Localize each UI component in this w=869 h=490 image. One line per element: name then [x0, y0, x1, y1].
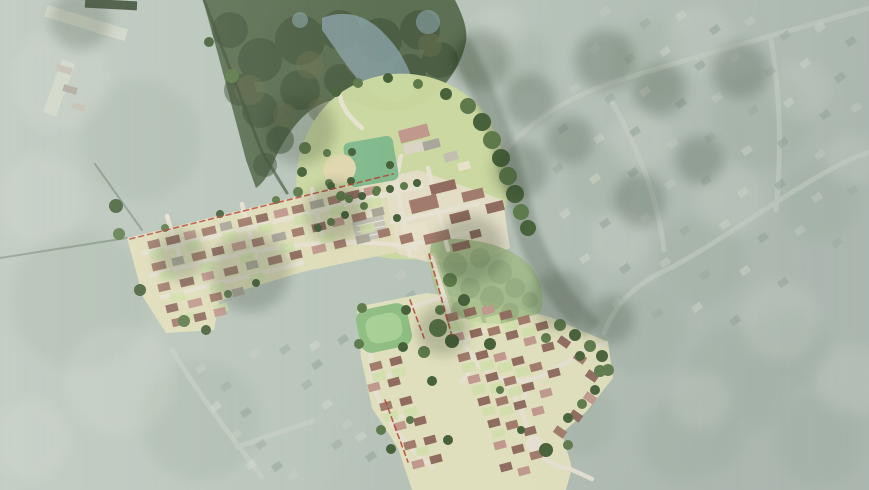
right-tint-overlay [0, 0, 869, 490]
map-canvas [0, 0, 869, 490]
aerial-masterplan-view [0, 0, 869, 490]
